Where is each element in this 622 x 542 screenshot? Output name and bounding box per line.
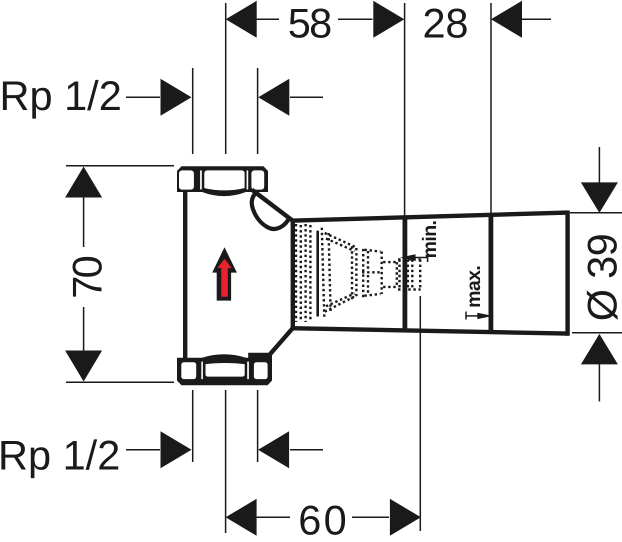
svg-text:Rp 1/2: Rp 1/2 bbox=[0, 432, 120, 479]
svg-text:min.: min. bbox=[419, 220, 441, 258]
svg-text:58: 58 bbox=[288, 0, 333, 47]
svg-text:Ø 39: Ø 39 bbox=[579, 233, 622, 321]
svg-text:max.: max. bbox=[463, 266, 485, 308]
svg-text:28: 28 bbox=[423, 0, 469, 47]
svg-text:Rp 1/2: Rp 1/2 bbox=[0, 72, 122, 119]
svg-text:70: 70 bbox=[64, 255, 111, 299]
